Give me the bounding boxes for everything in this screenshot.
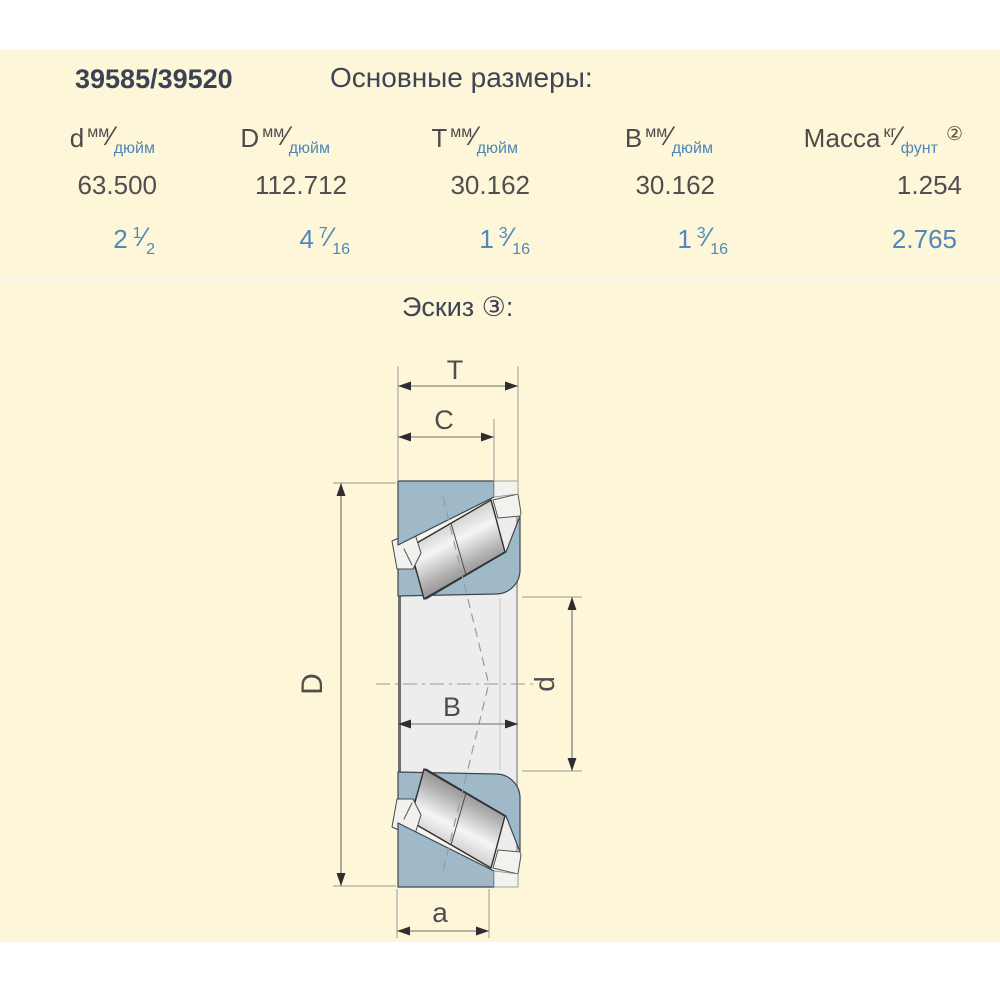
value-B-inch: 13⁄16 <box>560 208 728 260</box>
dimension-d: d <box>522 597 582 771</box>
label-a: a <box>432 897 448 928</box>
footnote-2-icon: ② <box>946 124 963 145</box>
catalog-panel: 39585/39520 Основные размеры: dмм⁄дюйм D… <box>0 50 1000 942</box>
column-header-B: Bмм⁄дюйм <box>558 108 713 158</box>
value-B-mm: 30.162 <box>560 162 715 208</box>
label-C: C <box>434 405 454 435</box>
section-divider <box>0 279 1000 282</box>
column-header-D: Dмм⁄дюйм <box>175 108 330 158</box>
value-T-mm: 30.162 <box>375 162 530 208</box>
dimension-C: C <box>398 405 494 481</box>
column-header-d: dмм⁄дюйм <box>8 108 155 158</box>
bearing-sketch: T C D d B <box>300 350 620 950</box>
dimension-T: T <box>398 355 518 481</box>
column-header-T: Tмм⁄дюйм <box>363 108 518 158</box>
value-mass-lb: 2.765 <box>740 208 962 260</box>
label-d: d <box>529 676 560 692</box>
sketch-title: Эскиз ③: <box>402 292 513 323</box>
label-D: D <box>300 673 329 695</box>
value-D-inch: 47⁄16 <box>190 208 350 260</box>
cup-face <box>494 481 518 497</box>
value-d-mm: 63.500 <box>8 162 157 208</box>
bearing-lower-assembly <box>392 769 521 887</box>
value-mass-kg: 1.254 <box>740 162 962 208</box>
value-D-mm: 112.712 <box>190 162 347 208</box>
value-T-inch: 13⁄16 <box>375 208 530 260</box>
value-d-inch: 21⁄2 <box>8 208 155 260</box>
label-B: B <box>443 692 461 722</box>
column-header-mass: Массакг⁄фунт② <box>740 108 963 158</box>
dimension-a: a <box>397 889 489 938</box>
section-title: Основные размеры: <box>330 62 593 94</box>
label-T: T <box>447 355 464 385</box>
part-number: 39585/39520 <box>75 64 233 95</box>
bearing-upper-assembly <box>392 481 521 599</box>
